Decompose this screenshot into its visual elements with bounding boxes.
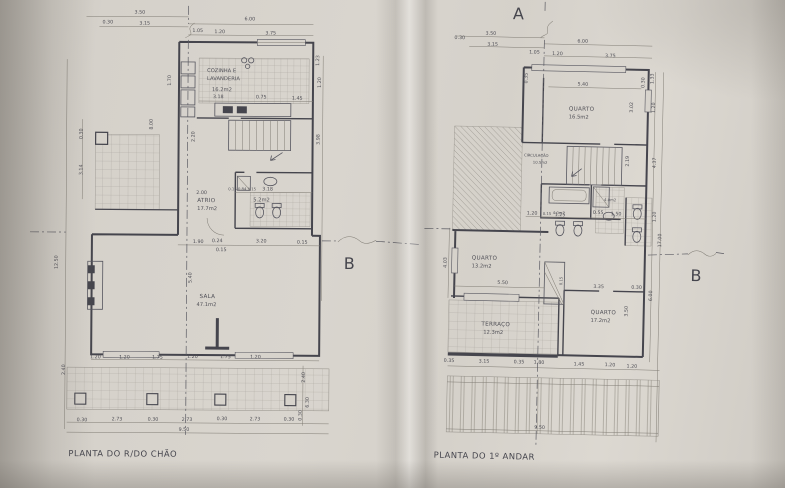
dim-label: 0.30 xyxy=(454,35,465,41)
kitchen-divider-wall xyxy=(197,118,313,119)
dim-label: 1.20 xyxy=(651,102,657,113)
dim-label: 1.45 xyxy=(574,362,585,368)
dim-label: 1.20 xyxy=(250,354,261,360)
dim-label: 6.30 xyxy=(305,397,311,408)
dim-label: 3.98 xyxy=(316,134,322,145)
room-area-label: 16.2m2 xyxy=(212,87,232,93)
dim-label: 2.73 xyxy=(250,416,261,422)
dim-label: 3.35 xyxy=(593,284,604,290)
room-label: QUARTO xyxy=(591,310,617,317)
dim-label: 0.35 xyxy=(523,73,529,84)
first-floor-plan: 3.50 6.00 0.30 3.15 1.05 1.20 3.75 0.35 … xyxy=(420,0,730,466)
floorplan-drawing: 3.50 6.00 0.30 3.15 1.05 1.20 3.75 3.18 … xyxy=(0,0,785,488)
quarto1-side-window xyxy=(645,90,651,112)
bidet-icon xyxy=(573,221,582,236)
dim-label: 9.50 xyxy=(179,427,190,433)
dim-label: 1.75 xyxy=(220,354,231,360)
dim-label: 4.03 xyxy=(443,257,449,268)
quarto1-window xyxy=(532,65,626,73)
dim-label: 0.30 xyxy=(79,128,85,139)
room-label: SALA xyxy=(200,294,216,300)
dim-label: 2.00 xyxy=(196,190,207,196)
dim-label: 0.15 xyxy=(558,276,563,285)
sala-window-1 xyxy=(103,351,159,357)
dim-label: 2.40 xyxy=(61,364,67,375)
dim-label: 3.02 xyxy=(629,102,635,113)
dim-label: 17.00 xyxy=(657,234,663,248)
dim-label: 1.20 xyxy=(317,77,323,88)
kitchen-counter xyxy=(215,103,291,117)
dim-label: 3.15 xyxy=(479,359,490,365)
dim-label: 1.75 xyxy=(152,355,163,361)
dim-label: 0.30 xyxy=(148,417,159,423)
dim-label: 3.15 xyxy=(139,21,150,27)
dim-label: 0.24 xyxy=(212,238,223,244)
room-area-label: 4.0m2 xyxy=(604,197,617,202)
toilet-icon xyxy=(555,221,564,236)
sink-icon xyxy=(264,177,277,185)
room-label: ATRIO xyxy=(197,198,216,204)
dim-label: 0.30 xyxy=(640,77,646,88)
dim-label: 3.50 xyxy=(485,31,496,37)
dim-label: 4.37 xyxy=(652,157,658,168)
dim-label: 9.50 xyxy=(534,425,545,431)
room-area-label: 10.5m2 xyxy=(533,160,548,165)
dim-label: 1.05 xyxy=(192,28,203,34)
dim-label: 0.75 xyxy=(256,94,267,100)
patio-column xyxy=(96,132,108,144)
dim-label: 0.15 0.84 0.15 xyxy=(228,186,256,191)
dim-label: 1.20 xyxy=(627,364,638,370)
dim-label: 2.73 xyxy=(182,417,193,423)
dim-label: 3.14 xyxy=(78,164,84,175)
sala-window-2 xyxy=(235,352,293,358)
room-area-label: 12.3m2 xyxy=(483,330,503,336)
dim-label: 2.40 xyxy=(301,372,307,383)
dim-label: 2.73 xyxy=(112,416,123,422)
dim-label: 6.00 xyxy=(244,16,255,22)
room-label: CIRCULAÇÃO xyxy=(524,152,549,158)
room-area-label: 17.7m2 xyxy=(197,206,217,212)
dim-label: 1.20 xyxy=(119,354,130,360)
dim-label: 0.15 xyxy=(543,211,552,216)
quarto2-window xyxy=(451,248,458,273)
room-label: QUARTO xyxy=(569,106,595,113)
dim-label: 0.15 xyxy=(216,247,227,253)
roof-hatch-left xyxy=(452,126,522,231)
stairs-first-floor xyxy=(566,146,622,185)
plan-caption-first-floor: PLANTA DO 1º ANDAR xyxy=(434,450,535,462)
room-area-label: 47.1m2 xyxy=(196,302,216,308)
dim-label: 0.30 xyxy=(298,410,304,421)
dim-label: 2.19 xyxy=(625,156,631,167)
room-area-label: 13.2m2 xyxy=(472,263,492,269)
dim-label: 1.05 xyxy=(529,50,540,56)
dim-label: 3.50 xyxy=(134,10,145,16)
dim-label: 1.20 xyxy=(552,51,563,57)
section-marker-b: B xyxy=(344,254,355,273)
stair-arrow xyxy=(572,168,582,176)
bathtub-icon xyxy=(549,187,589,204)
dim-label: 1.20 xyxy=(652,211,658,222)
dim-label: 12.50 xyxy=(54,255,60,269)
room-area-label: 16.5m2 xyxy=(569,114,589,120)
dim-label: 0.30 xyxy=(217,416,228,422)
dim-label: 3.75 xyxy=(605,53,616,59)
room-label: TERRAÇO xyxy=(480,322,510,329)
bottom-wall-first-floor xyxy=(558,355,643,357)
stairs-ground xyxy=(228,120,290,160)
dim-label: 8.00 xyxy=(149,119,155,130)
dim-label: 0.30 xyxy=(284,417,295,423)
dim-label: 0.55 xyxy=(593,210,604,216)
dim-label: 0.30 xyxy=(102,19,113,25)
quarto2-walls xyxy=(451,230,548,300)
dim-label: 6.00 xyxy=(648,290,654,301)
stair-arrow xyxy=(270,152,282,160)
dim-label: 0.15 xyxy=(297,240,308,246)
dim-label: 5.50 xyxy=(497,280,508,286)
room-label: LAVANDERIA xyxy=(207,76,240,82)
entry-door-arc xyxy=(207,218,224,235)
dim-label: 5.40 xyxy=(188,272,194,283)
dim-label: 1.80 xyxy=(534,360,545,366)
patio-tile-floor xyxy=(95,134,160,209)
dim-label: 1.45 xyxy=(292,96,303,102)
section-marker-b: B xyxy=(690,266,701,285)
dim-label: 0.35 xyxy=(514,359,525,365)
dim-label: 1.20 xyxy=(527,211,538,217)
room-area-label: 5.2m2 xyxy=(253,197,270,203)
room-label: COZINHA E xyxy=(207,68,236,74)
dim-label: 1.50 xyxy=(611,211,622,217)
dim-label: 0.30 xyxy=(77,417,88,423)
ground-floor-plan: 3.50 6.00 0.30 3.15 1.05 1.20 3.75 3.18 … xyxy=(28,5,421,461)
dim-label: 1.33 xyxy=(649,73,655,84)
sala-column xyxy=(205,318,229,348)
dim-label: 3.50 xyxy=(624,306,630,317)
dim-label: 1.23 xyxy=(315,55,321,66)
dim-label: 0.35 xyxy=(444,358,455,364)
dim-label: 5.40 xyxy=(577,82,588,88)
plan-caption-ground-floor: PLANTA DO R/DO CHÃO xyxy=(68,448,177,459)
dim-label: 6.00 xyxy=(577,39,588,45)
dim-label: 1.20 xyxy=(90,354,101,360)
dim-label: 3.18 xyxy=(213,94,224,100)
terrace-door-window xyxy=(464,293,519,301)
dim-label: 1.70 xyxy=(167,75,173,86)
dim-label: 1.20 xyxy=(214,29,225,35)
dim-label: 3.20 xyxy=(256,238,267,244)
dim-label: 3.15 xyxy=(487,42,498,48)
dim-label: 0.30 xyxy=(631,285,642,291)
dim-label: 2.20 xyxy=(191,131,197,142)
room-label: QUARTO xyxy=(472,255,498,262)
patio-wall xyxy=(95,209,178,210)
blueprint-photo: 3.50 6.00 0.30 3.15 1.05 1.20 3.75 3.18 … xyxy=(0,0,785,488)
dim-label: 3.18 xyxy=(262,186,273,192)
room-area-label: 17.2m2 xyxy=(590,318,610,324)
dim-label: 1.90 xyxy=(193,239,204,245)
section-marker-a: A xyxy=(513,4,524,23)
roof-hatch-bottom xyxy=(446,376,659,436)
fireplace xyxy=(87,261,102,309)
dim-label: 1.20 xyxy=(605,362,616,368)
room-area-label: 4.0m2 xyxy=(553,210,566,215)
terrace-parapet xyxy=(448,354,558,356)
dim-label: 3.75 xyxy=(265,30,276,36)
dim-label: 1.20 xyxy=(187,354,198,360)
